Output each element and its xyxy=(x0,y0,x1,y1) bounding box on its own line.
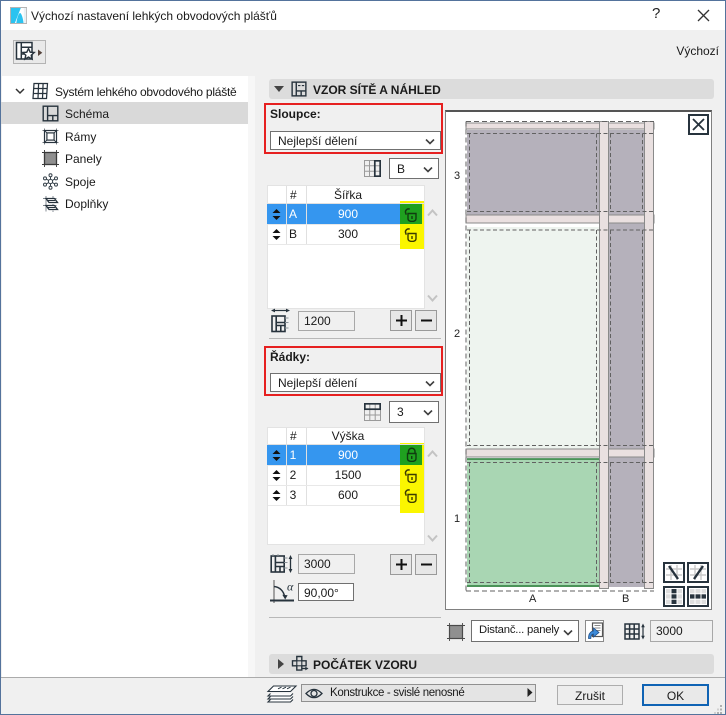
svg-text:A: A xyxy=(529,593,537,605)
svg-text:2: 2 xyxy=(454,328,460,340)
svg-text:3: 3 xyxy=(454,170,460,182)
svg-text:1: 1 xyxy=(454,513,460,525)
svg-text:B: B xyxy=(622,593,629,605)
svg-text:α: α xyxy=(287,580,294,594)
